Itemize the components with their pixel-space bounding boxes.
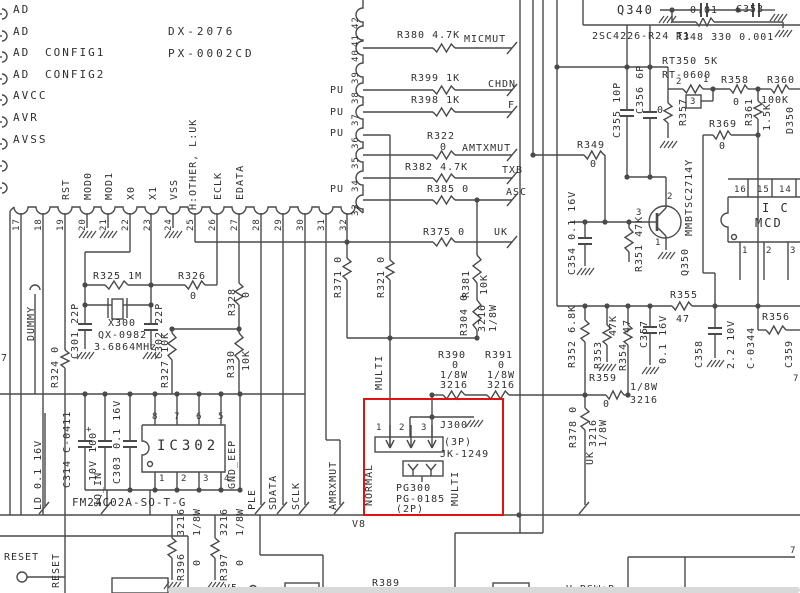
- window-edge: [168, 587, 800, 593]
- highlight-box: [363, 398, 504, 516]
- schematic-page: ADADADCONFIG1ADCONFIG2AVCCAVRAVSSDX-2076…: [0, 0, 800, 593]
